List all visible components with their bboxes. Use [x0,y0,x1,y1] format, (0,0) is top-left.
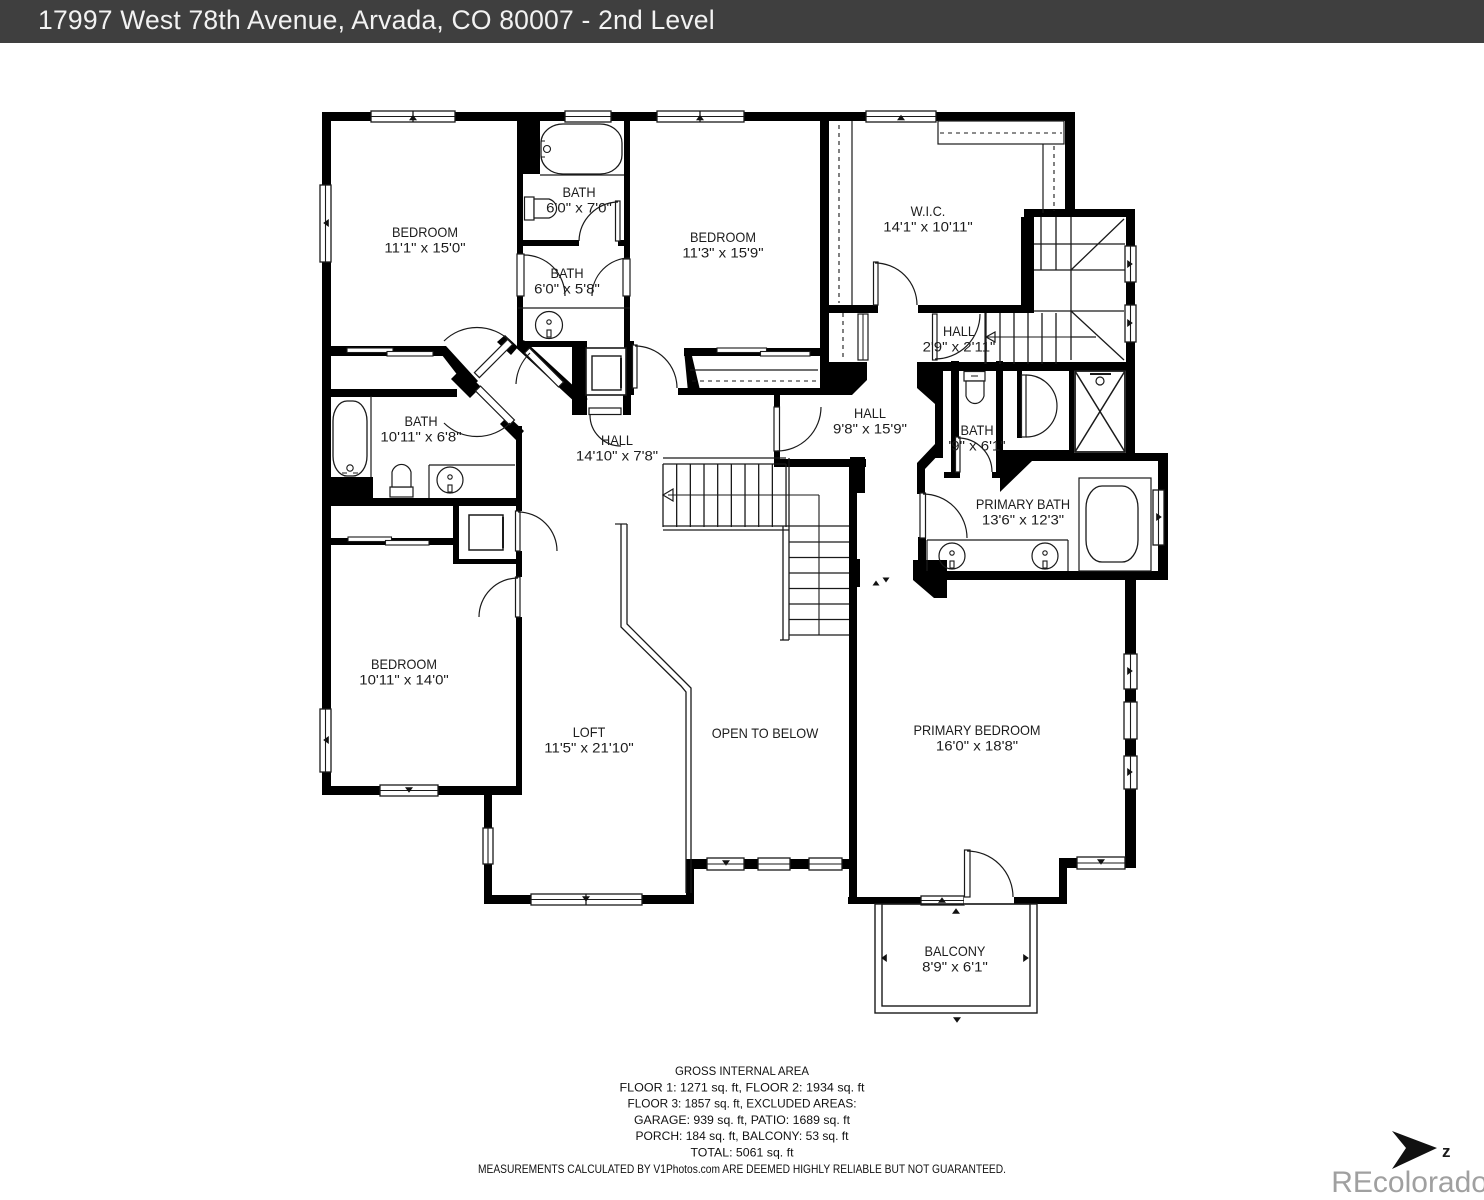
svg-text:BATH: BATH [960,423,993,438]
svg-text:FLOOR 1: 1271 sq. ft, FLOOR 2:: FLOOR 1: 1271 sq. ft, FLOOR 2: 1934 sq. … [620,1080,866,1094]
svg-text:REcolorado: REcolorado [1331,1166,1484,1199]
svg-text:2'9" x 2'11": 2'9" x 2'11" [923,340,996,355]
svg-text:8'9" x 6'1": 8'9" x 6'1" [922,960,988,975]
svg-text:W.I.C.: W.I.C. [911,204,946,219]
svg-text:6'0" x 7'0": 6'0" x 7'0" [546,201,612,216]
svg-text:HALL: HALL [943,324,975,339]
svg-text:13'6" x 12'3": 13'6" x 12'3" [982,513,1064,528]
svg-text:MEASUREMENTS CALCULATED BY V1P: MEASUREMENTS CALCULATED BY V1Photos.com … [478,1162,1006,1176]
svg-text:BALCONY: BALCONY [925,944,986,959]
svg-text:11'3" x 15'9": 11'3" x 15'9" [682,246,763,261]
svg-text:BEDROOM: BEDROOM [371,657,437,672]
svg-text:TOTAL: 5061 sq. ft: TOTAL: 5061 sq. ft [691,1146,795,1160]
svg-text:BATH: BATH [562,185,595,200]
svg-text:OPEN TO BELOW: OPEN TO BELOW [712,726,819,741]
svg-text:PORCH: 184 sq. ft, BALCONY: 53: PORCH: 184 sq. ft, BALCONY: 53 sq. ft [636,1129,850,1143]
svg-text:16'0" x 18'8": 16'0" x 18'8" [936,739,1018,754]
svg-text:FLOOR 3: 1857 sq. ft, EXCLUDED: FLOOR 3: 1857 sq. ft, EXCLUDED AREAS: [628,1097,857,1111]
svg-text:BATH: BATH [404,414,437,429]
svg-text:11'5" x 21'10": 11'5" x 21'10" [544,741,634,756]
svg-text:GROSS INTERNAL AREA: GROSS INTERNAL AREA [675,1064,809,1078]
svg-text:BATH: BATH [550,266,583,281]
svg-text:10'11" x 6'8": 10'11" x 6'8" [380,430,461,445]
svg-text:9'8" x 15'9": 9'8" x 15'9" [833,422,907,437]
svg-text:'9" x 6'1": '9" x 6'1" [948,439,1005,454]
svg-text:10'11" x 14'0": 10'11" x 14'0" [359,673,449,688]
svg-text:11'1" x 15'0": 11'1" x 15'0" [384,241,465,256]
svg-text:GARAGE: 939 sq. ft, PATIO: 168: GARAGE: 939 sq. ft, PATIO: 1689 sq. ft [634,1113,851,1127]
svg-text:HALL: HALL [601,433,633,448]
svg-text:HALL: HALL [854,406,886,421]
svg-text:BEDROOM: BEDROOM [392,225,458,240]
svg-text:PRIMARY BATH: PRIMARY BATH [976,497,1070,512]
svg-text:14'1" x 10'11": 14'1" x 10'11" [883,220,973,235]
svg-text:z: z [1442,1142,1451,1161]
svg-text:6'0" x 5'8": 6'0" x 5'8" [534,282,600,297]
svg-text:LOFT: LOFT [573,725,606,740]
svg-text:BEDROOM: BEDROOM [690,230,756,245]
svg-text:14'10" x 7'8": 14'10" x 7'8" [576,449,658,464]
svg-text:PRIMARY BEDROOM: PRIMARY BEDROOM [913,723,1040,738]
